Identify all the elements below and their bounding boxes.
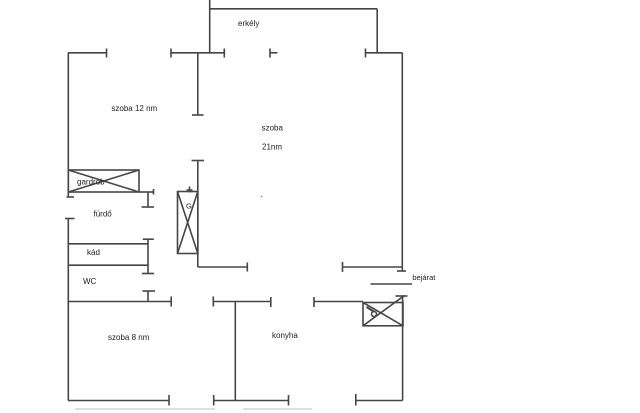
svg-text:szoba 12 nm: szoba 12 nm — [111, 104, 157, 113]
svg-text:konyha: konyha — [272, 331, 298, 340]
svg-text:kád: kád — [87, 248, 100, 257]
svg-text:gardrob: gardrob — [77, 178, 105, 187]
svg-text:fürdő: fürdő — [94, 210, 113, 219]
svg-text:szoba 8 nm: szoba 8 nm — [108, 333, 150, 342]
svg-text:bejárat: bejárat — [412, 273, 436, 282]
svg-text:szoba: szoba — [262, 124, 284, 133]
svg-text:erkély: erkély — [238, 19, 259, 28]
svg-text:WC: WC — [83, 277, 97, 286]
svg-text:G: G — [186, 202, 192, 211]
svg-text:21nm: 21nm — [262, 143, 282, 152]
